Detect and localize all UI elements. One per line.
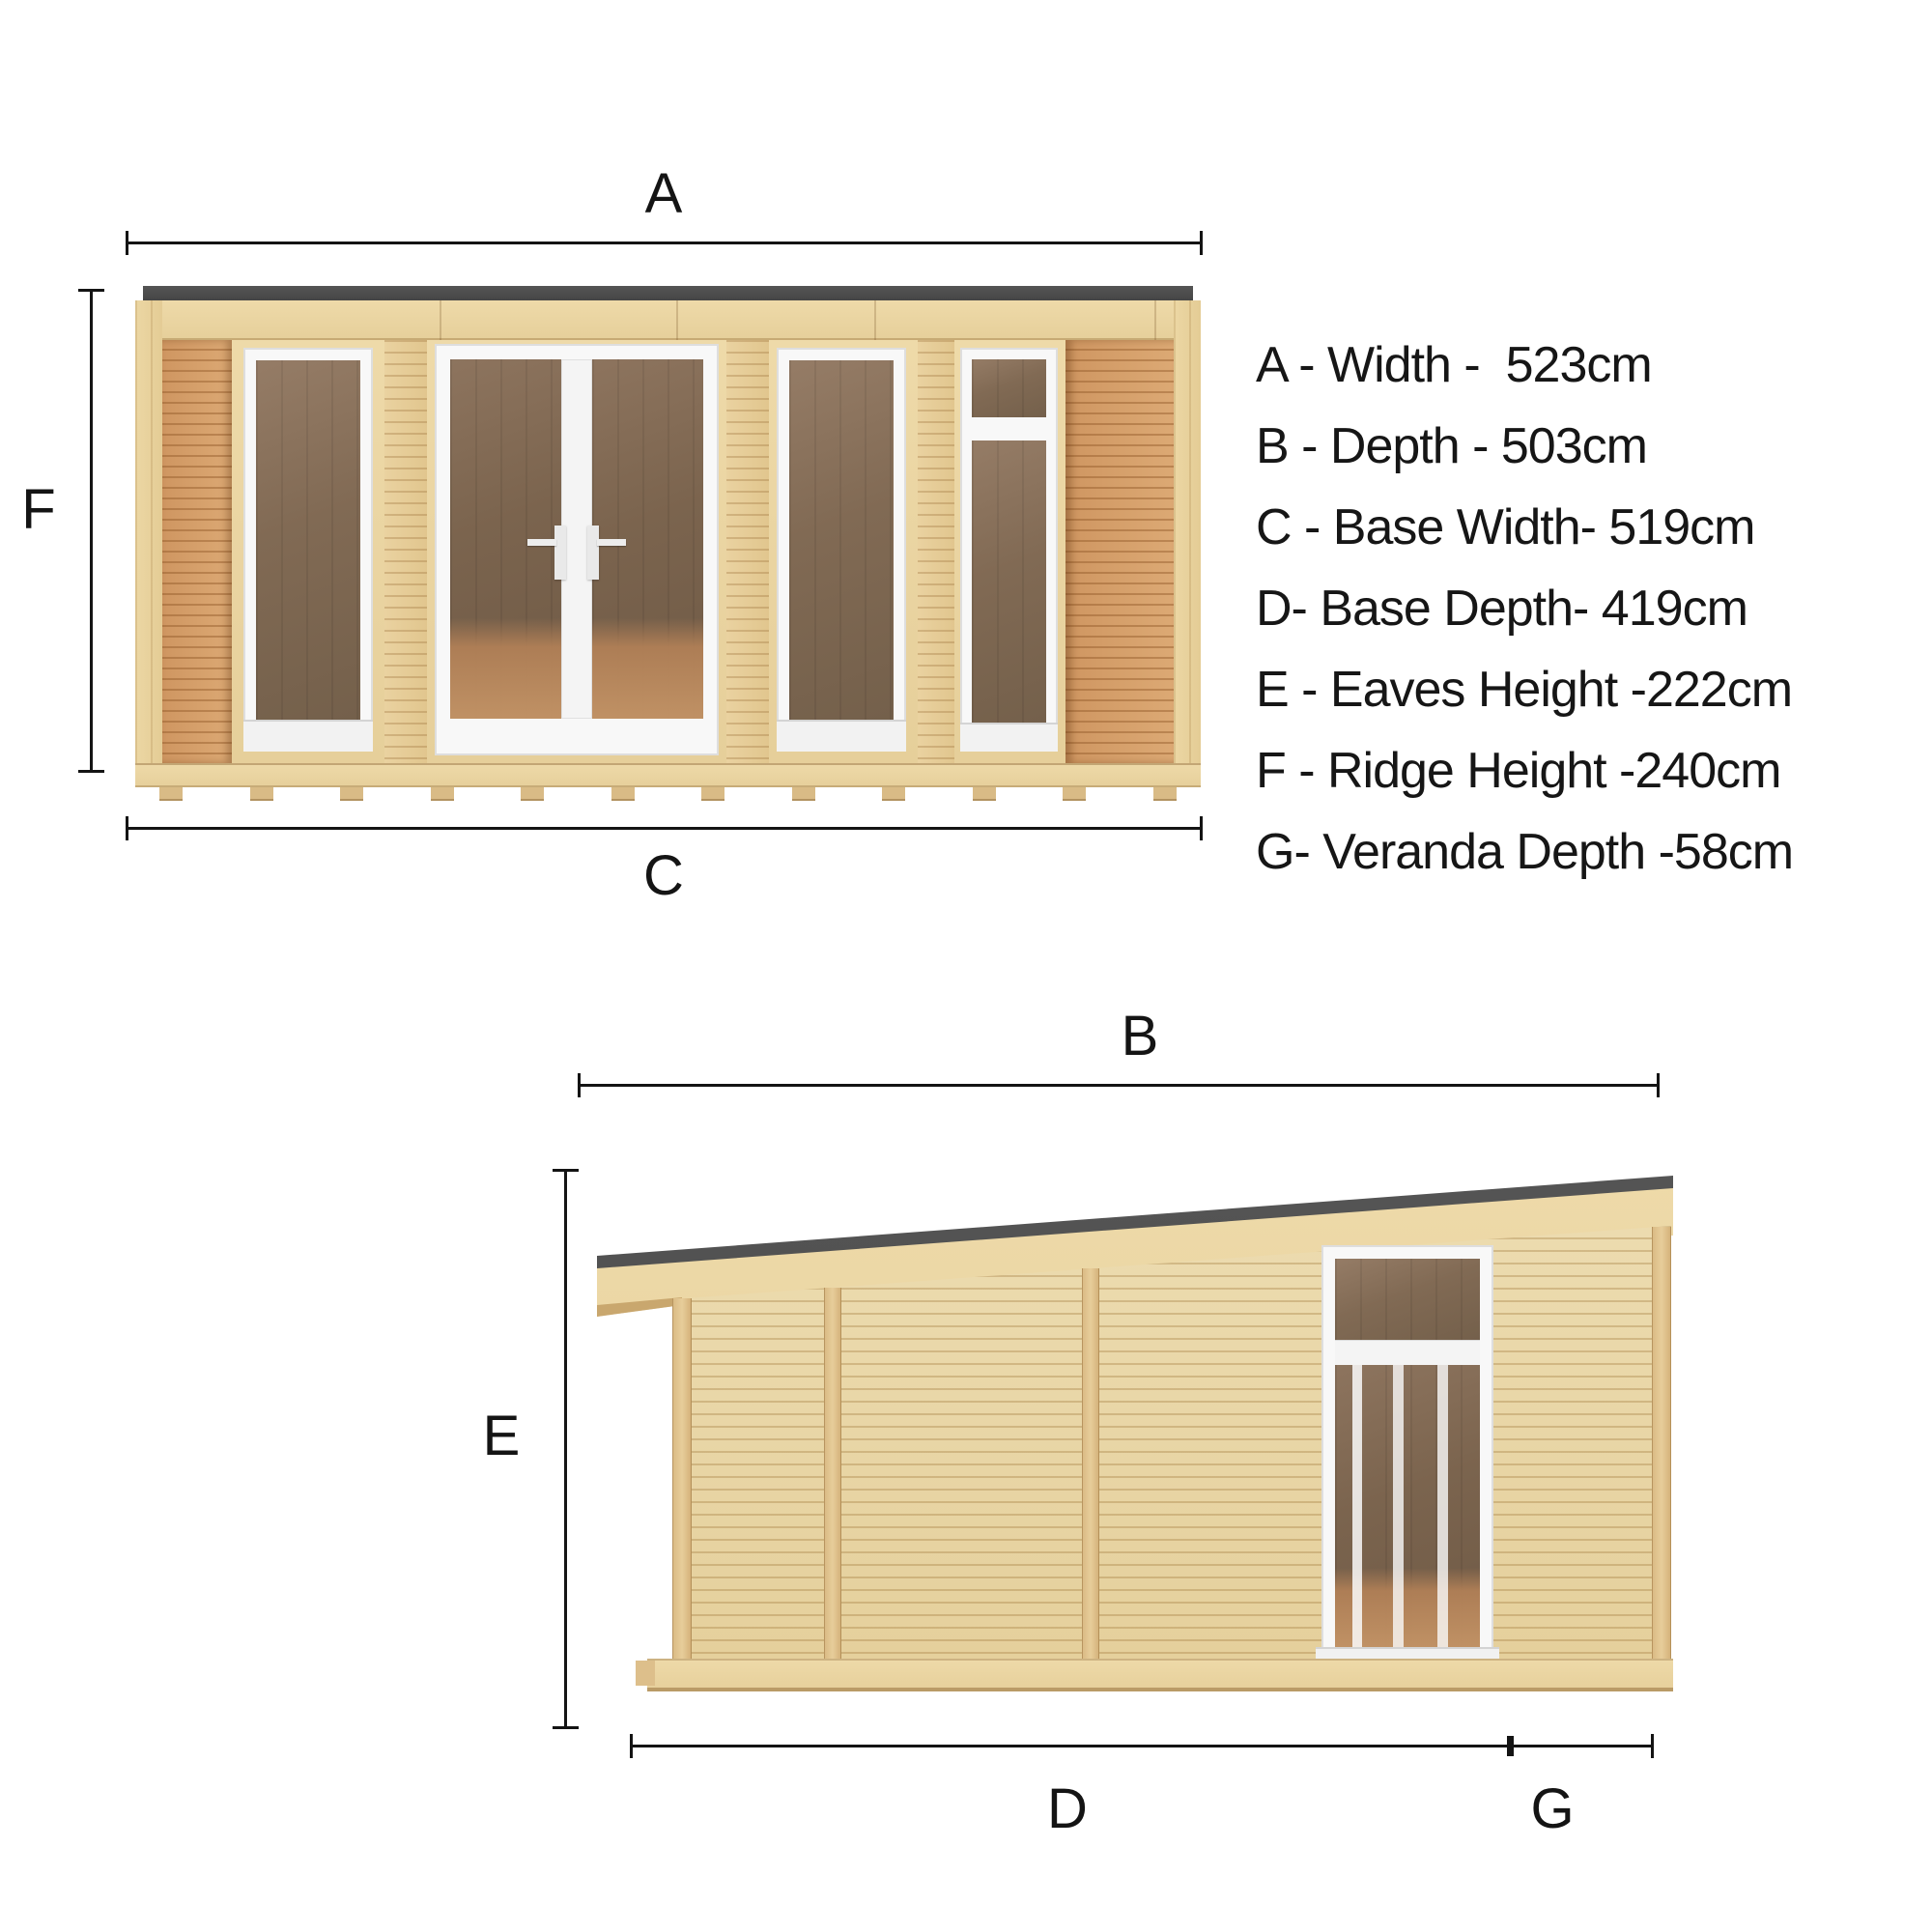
legend-item-e: E - Eaves Height -222cm bbox=[1256, 649, 1893, 730]
dimension-line-c bbox=[126, 827, 1203, 830]
legend-item-d: D- Base Depth- 419cm bbox=[1256, 568, 1893, 649]
front-toplight-lower-glass bbox=[972, 440, 1046, 723]
legend-item-g: G- Veranda Depth -58cm bbox=[1256, 811, 1893, 893]
side-base bbox=[647, 1659, 1673, 1691]
dimension-line-e bbox=[564, 1169, 567, 1729]
legend-item-c: C - Base Width- 519cm bbox=[1256, 487, 1893, 568]
dim-label-d: D bbox=[1019, 1781, 1116, 1837]
foot bbox=[611, 787, 635, 801]
side-door-toplight-glass bbox=[1335, 1259, 1480, 1340]
dim-label-g: G bbox=[1504, 1781, 1601, 1837]
front-french-doors bbox=[435, 344, 719, 755]
foot bbox=[1153, 787, 1177, 801]
side-base-step bbox=[636, 1661, 655, 1686]
front-header-joint bbox=[440, 300, 441, 340]
foot bbox=[792, 787, 815, 801]
legend-item-b: B - Depth - 503cm bbox=[1256, 406, 1893, 487]
dim-label-e: E bbox=[470, 1408, 532, 1464]
dimension-line-a bbox=[126, 241, 1203, 244]
dim-label-f: F bbox=[8, 482, 70, 538]
side-door-transom bbox=[1335, 1340, 1480, 1365]
front-mullion bbox=[726, 340, 769, 763]
door-handle-right bbox=[587, 526, 599, 580]
legend: A - Width - 523cm B - Depth - 503cm C - … bbox=[1256, 325, 1893, 893]
front-toplight-sill bbox=[960, 723, 1058, 752]
side-door-glass bbox=[1335, 1365, 1480, 1647]
dim-label-c: C bbox=[615, 848, 712, 904]
side-corner-trim-right bbox=[1652, 1227, 1671, 1659]
front-header-beam bbox=[135, 300, 1201, 340]
front-right-veranda-wall bbox=[1065, 340, 1174, 763]
front-header-joint bbox=[1154, 300, 1156, 340]
front-roof-edge bbox=[143, 286, 1193, 300]
front-window-left bbox=[243, 348, 373, 752]
foot bbox=[521, 787, 544, 801]
dim-dg-separator-tick bbox=[1507, 1736, 1514, 1756]
foot bbox=[431, 787, 454, 801]
door-handle-left bbox=[554, 526, 566, 580]
foot bbox=[701, 787, 724, 801]
foot bbox=[882, 787, 905, 801]
dimension-diagram: A F C bbox=[0, 0, 1932, 1932]
front-window-middle-sill bbox=[777, 720, 906, 752]
door-handle-left-bar bbox=[527, 539, 556, 546]
foot bbox=[340, 787, 363, 801]
front-window-left-glass bbox=[256, 360, 360, 720]
dimension-line-f bbox=[90, 289, 93, 773]
front-right-post bbox=[1174, 300, 1201, 763]
dim-label-a: A bbox=[615, 166, 712, 222]
side-batten bbox=[824, 1288, 841, 1659]
front-left-veranda-wall bbox=[162, 340, 232, 763]
front-toplight-glass bbox=[972, 359, 1046, 417]
front-window-middle-glass bbox=[789, 360, 894, 720]
side-batten bbox=[1082, 1268, 1099, 1659]
front-window-left-sill bbox=[243, 720, 373, 752]
foot bbox=[250, 787, 273, 801]
foot bbox=[973, 787, 996, 801]
front-header-joint bbox=[874, 300, 876, 340]
dim-label-b: B bbox=[1092, 1009, 1188, 1065]
front-header-joint bbox=[676, 300, 678, 340]
side-veranda-door bbox=[1321, 1245, 1493, 1676]
dimension-line-d-g bbox=[630, 1745, 1654, 1747]
legend-item-f: F - Ridge Height -240cm bbox=[1256, 730, 1893, 811]
side-corner-trim-left bbox=[672, 1298, 692, 1659]
inner-glazing-bar bbox=[1352, 1365, 1362, 1647]
front-elevation bbox=[135, 286, 1201, 801]
front-mullion bbox=[384, 340, 427, 763]
inner-glazing-bar bbox=[1437, 1365, 1448, 1647]
dimension-line-b bbox=[578, 1084, 1660, 1087]
front-window-middle bbox=[777, 348, 906, 752]
legend-item-a: A - Width - 523cm bbox=[1256, 325, 1893, 406]
inner-glazing-bar bbox=[1393, 1365, 1404, 1647]
front-left-post bbox=[135, 300, 162, 763]
front-base-rail bbox=[135, 763, 1201, 787]
foot bbox=[1063, 787, 1086, 801]
front-feet bbox=[135, 787, 1201, 801]
foot bbox=[159, 787, 183, 801]
side-elevation bbox=[589, 1164, 1681, 1705]
front-window-toplight bbox=[960, 348, 1058, 752]
front-mullion bbox=[918, 340, 954, 763]
door-handle-right-bar bbox=[597, 539, 626, 546]
